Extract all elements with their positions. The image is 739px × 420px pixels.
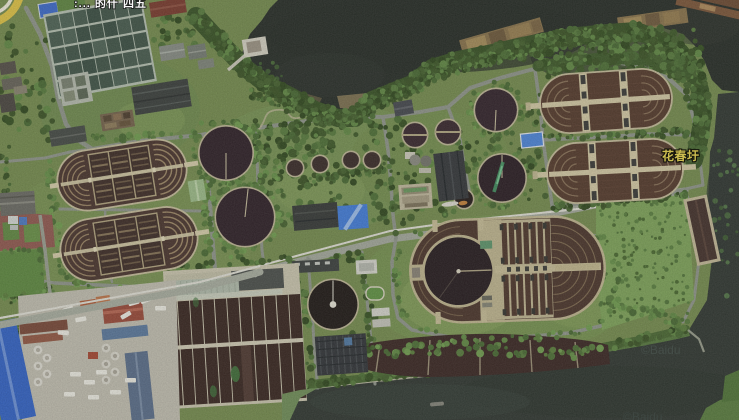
svg-text::... 的什 四五: :... 的什 四五 bbox=[74, 0, 147, 10]
svg-text:©Baidu: ©Baidu bbox=[641, 343, 681, 357]
svg-text:©Baidu: ©Baidu bbox=[623, 410, 663, 420]
svg-text:花春圩: 花春圩 bbox=[662, 148, 700, 163]
